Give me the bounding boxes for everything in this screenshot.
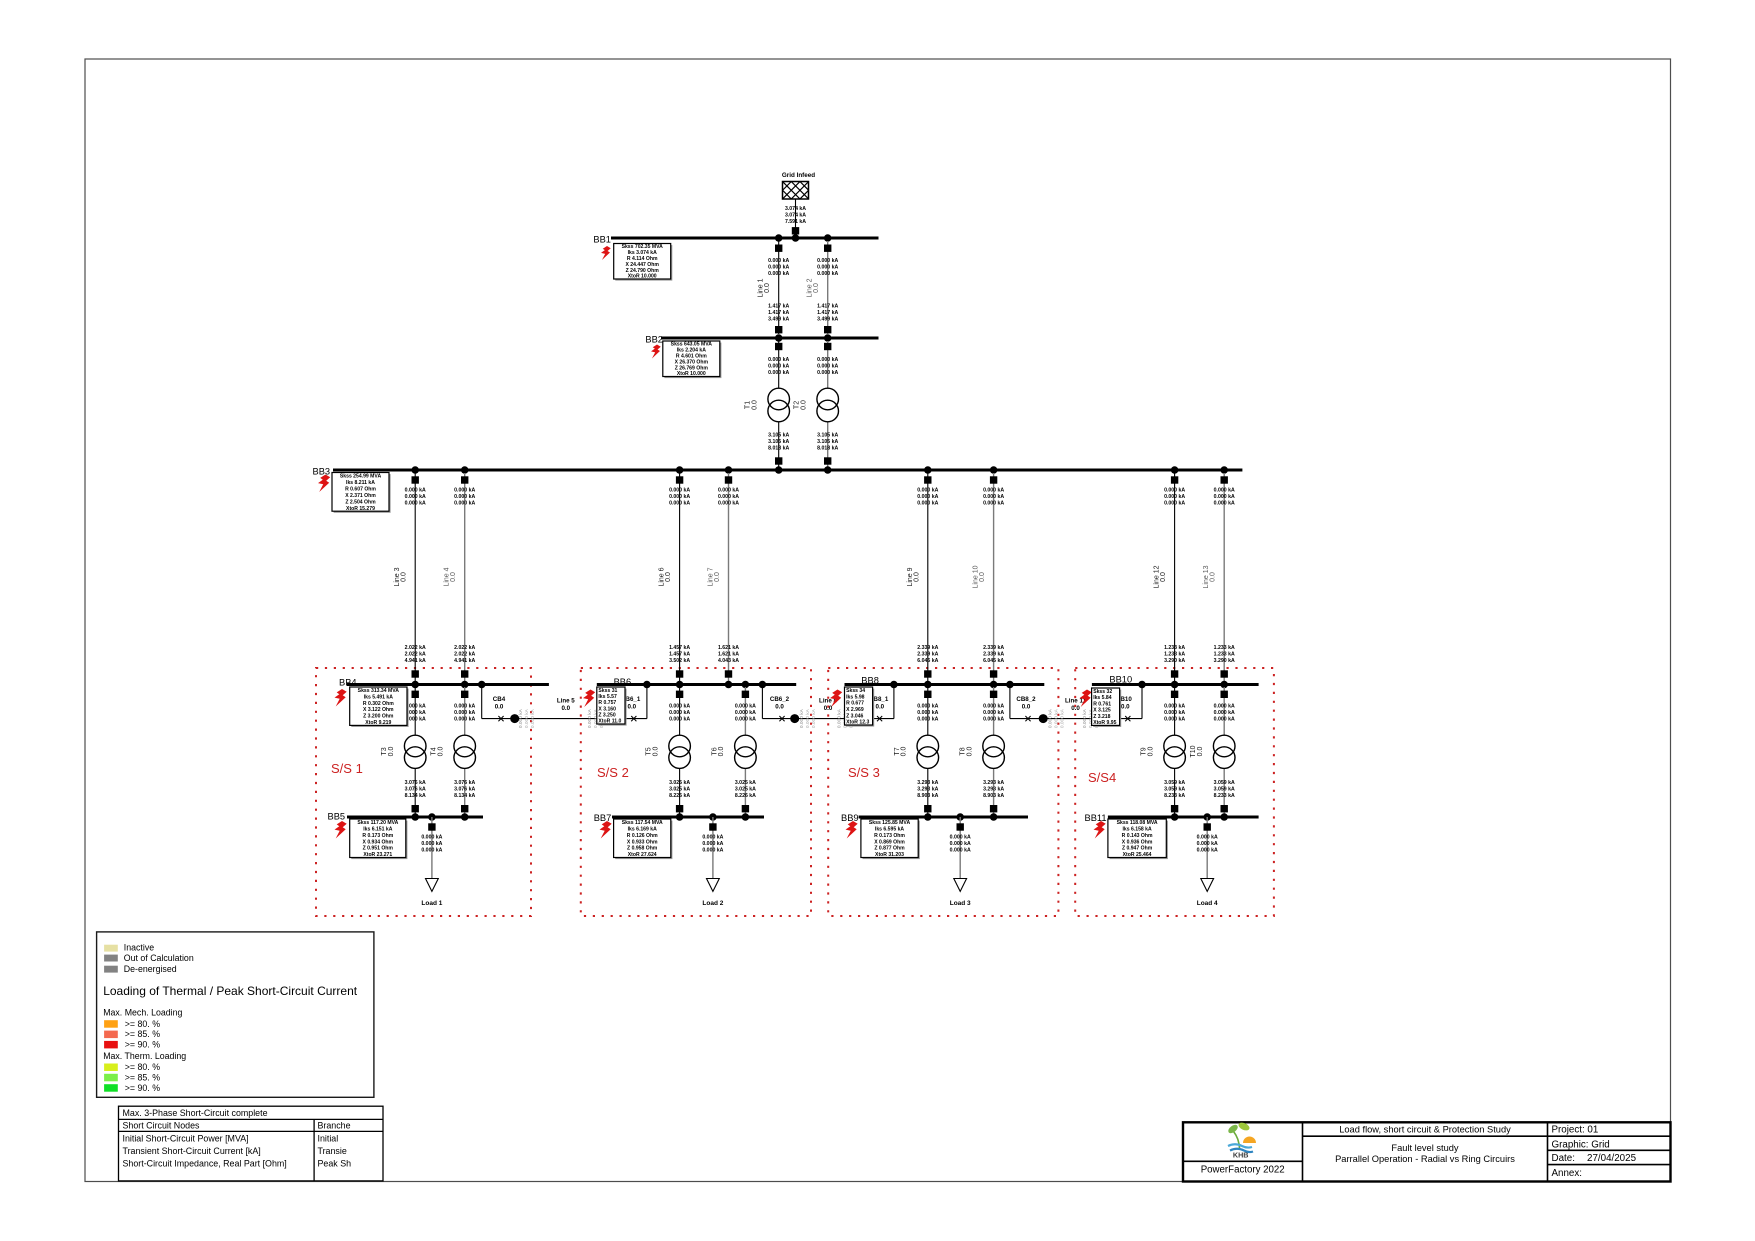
svg-text:3.105 kA: 3.105 kA (817, 439, 838, 445)
svg-text:3.293 kA: 3.293 kA (917, 780, 938, 786)
svg-text:8.903 kA: 8.903 kA (917, 793, 938, 799)
svg-text:Loading of Thermal / Peak Shor: Loading of Thermal / Peak Short-Circuit … (103, 984, 358, 998)
svg-text:Max. Therm. Loading: Max. Therm. Loading (103, 1051, 186, 1061)
svg-text:1.233 kA: 1.233 kA (1214, 645, 1235, 651)
svg-text:0.0: 0.0 (1210, 572, 1217, 582)
svg-text:R 0.143 Ohm: R 0.143 Ohm (1122, 833, 1153, 839)
svg-text:Load 4: Load 4 (1197, 900, 1218, 907)
svg-text:0.000 kA: 0.000 kA (1164, 717, 1185, 723)
svg-text:0.000 kA: 0.000 kA (1164, 710, 1185, 716)
svg-text:XtoR 10.000: XtoR 10.000 (677, 371, 706, 377)
svg-text:4.043 kA: 4.043 kA (718, 658, 739, 664)
svg-text:1.233 kA: 1.233 kA (1214, 652, 1235, 658)
svg-text:6.045 kA: 6.045 kA (983, 658, 1004, 664)
svg-text:BB4: BB4 (339, 678, 357, 688)
svg-text:0.000 kA: 0.000 kA (735, 710, 756, 716)
svg-text:X 2.969: X 2.969 (846, 707, 864, 713)
svg-text:0.000 kA: 0.000 kA (1164, 494, 1185, 500)
svg-text:0.000 kA: 0.000 kA (983, 501, 1004, 507)
svg-text:Transie: Transie (318, 1146, 347, 1156)
svg-text:0.000 kA: 0.000 kA (1197, 848, 1218, 854)
svg-text:7.591 kA: 7.591 kA (785, 219, 806, 225)
svg-text:CB4: CB4 (493, 696, 506, 703)
svg-text:Load 3: Load 3 (950, 900, 971, 907)
svg-text:1.417 kA: 1.417 kA (817, 310, 838, 316)
svg-text:0.000 kA: 0.000 kA (518, 708, 524, 728)
svg-text:8.134 kA: 8.134 kA (405, 793, 426, 799)
svg-text:0.000 kA: 0.000 kA (454, 488, 475, 494)
svg-text:>= 85. %: >= 85. % (125, 1029, 160, 1039)
svg-text:0.000 kA: 0.000 kA (799, 708, 805, 728)
svg-text:8.018 kA: 8.018 kA (817, 446, 838, 452)
svg-text:Skss 254.99 MVA: Skss 254.99 MVA (340, 474, 382, 480)
svg-text:Initial: Initial (318, 1134, 339, 1144)
svg-text:0.000 kA: 0.000 kA (1060, 708, 1066, 728)
svg-text:BB11: BB11 (1085, 813, 1107, 823)
svg-text:XtoR 9.95: XtoR 9.95 (1093, 720, 1116, 726)
svg-text:0.0: 0.0 (1022, 704, 1031, 711)
svg-text:0.000 kA: 0.000 kA (950, 835, 971, 841)
svg-text:0.000 kA: 0.000 kA (702, 841, 723, 847)
svg-text:X 3.122 Ohm: X 3.122 Ohm (363, 707, 394, 713)
svg-text:Transient Short-Circuit Curren: Transient Short-Circuit Current [kA] (123, 1146, 261, 1156)
svg-text:CB6_2: CB6_2 (770, 696, 790, 703)
svg-text:2.022 kA: 2.022 kA (454, 652, 475, 658)
svg-text:0.0: 0.0 (775, 704, 784, 711)
svg-text:BB1: BB1 (593, 235, 611, 245)
svg-text:3.502 kA: 3.502 kA (669, 658, 690, 664)
svg-text:0.000 kA: 0.000 kA (718, 501, 739, 507)
svg-text:0.0: 0.0 (1071, 705, 1080, 712)
svg-text:BB5: BB5 (328, 812, 346, 822)
svg-text:>= 85. %: >= 85. % (125, 1072, 160, 1082)
svg-text:0.000 kA: 0.000 kA (405, 494, 426, 500)
svg-text:0.000 kA: 0.000 kA (950, 848, 971, 854)
svg-text:0.000 kA: 0.000 kA (811, 708, 817, 728)
svg-text:0.000 kA: 0.000 kA (1214, 704, 1235, 710)
svg-text:KHB: KHB (1233, 1150, 1249, 1159)
svg-text:Z 2.504 Ohm: Z 2.504 Ohm (345, 499, 376, 505)
svg-text:Iks 5.84: Iks 5.84 (1093, 695, 1112, 701)
svg-text:Skss 31: Skss 31 (598, 688, 617, 694)
svg-text:0.0: 0.0 (966, 747, 973, 757)
svg-text:0.0: 0.0 (401, 572, 408, 582)
svg-text:1.457 kA: 1.457 kA (669, 645, 690, 651)
svg-text:0.000 kA: 0.000 kA (768, 258, 789, 264)
svg-text:3.025 kA: 3.025 kA (669, 780, 690, 786)
svg-text:3.074 kA: 3.074 kA (785, 213, 806, 219)
svg-text:Max. 3-Phase Short-Circuit com: Max. 3-Phase Short-Circuit complete (123, 1108, 268, 1118)
svg-text:S/S 1: S/S 1 (331, 761, 363, 776)
svg-text:0.000 kA: 0.000 kA (454, 494, 475, 500)
svg-text:0.000 kA: 0.000 kA (405, 501, 426, 507)
svg-text:R 0.126 Ohm: R 0.126 Ohm (627, 833, 658, 839)
svg-text:0.0: 0.0 (813, 283, 820, 293)
svg-text:3.074 kA: 3.074 kA (785, 206, 806, 212)
svg-text:0.000 kA: 0.000 kA (1214, 717, 1235, 723)
svg-text:0.0: 0.0 (1197, 747, 1204, 757)
svg-text:Iks 5.57: Iks 5.57 (598, 694, 617, 700)
svg-text:3.076 kA: 3.076 kA (405, 787, 426, 793)
svg-text:0.000 kA: 0.000 kA (805, 708, 811, 728)
svg-text:X 0.936 Ohm: X 0.936 Ohm (1122, 839, 1153, 845)
svg-text:0.000 kA: 0.000 kA (768, 370, 789, 376)
svg-text:>= 80. %: >= 80. % (125, 1062, 160, 1072)
svg-text:8.233 kA: 8.233 kA (1164, 793, 1185, 799)
svg-text:3.105 kA: 3.105 kA (768, 433, 789, 439)
svg-text:X 3.160: X 3.160 (598, 706, 616, 712)
svg-text:0.000 kA: 0.000 kA (702, 848, 723, 854)
svg-text:BB3: BB3 (313, 467, 331, 477)
svg-text:Parrallel Operation - Radial v: Parrallel Operation - Radial vs Ring Cir… (1335, 1154, 1515, 1164)
svg-text:Z 3.250: Z 3.250 (598, 713, 615, 719)
svg-text:2.022 kA: 2.022 kA (454, 645, 475, 651)
svg-text:0.000 kA: 0.000 kA (587, 708, 593, 728)
svg-text:1.621 kA: 1.621 kA (718, 652, 739, 658)
svg-text:3.293 kA: 3.293 kA (917, 787, 938, 793)
svg-text:0.000 kA: 0.000 kA (917, 488, 938, 494)
svg-text:1.417 kA: 1.417 kA (817, 304, 838, 310)
svg-text:3.059 kA: 3.059 kA (1214, 780, 1235, 786)
svg-text:0.000 kA: 0.000 kA (917, 501, 938, 507)
svg-text:6.045 kA: 6.045 kA (917, 658, 938, 664)
svg-text:0.000 kA: 0.000 kA (1164, 501, 1185, 507)
svg-text:0.000 kA: 0.000 kA (768, 265, 789, 271)
svg-text:XtoR 12.3: XtoR 12.3 (846, 720, 869, 726)
svg-text:0.000 kA: 0.000 kA (817, 271, 838, 277)
svg-text:1.233 kA: 1.233 kA (1164, 652, 1185, 658)
svg-text:0.000 kA: 0.000 kA (454, 501, 475, 507)
svg-text:3.290 kA: 3.290 kA (1214, 658, 1235, 664)
svg-text:3.025 kA: 3.025 kA (735, 780, 756, 786)
svg-text:3.076 kA: 3.076 kA (405, 780, 426, 786)
svg-text:X 2.371 Ohm: X 2.371 Ohm (345, 493, 376, 499)
svg-text:BB7: BB7 (594, 813, 612, 823)
svg-text:S/S 2: S/S 2 (597, 765, 629, 780)
svg-text:0.000 kA: 0.000 kA (950, 841, 971, 847)
svg-text:XtoR 27.624: XtoR 27.624 (628, 852, 657, 858)
svg-text:0.0: 0.0 (1121, 704, 1130, 711)
svg-text:0.000 kA: 0.000 kA (1214, 710, 1235, 716)
svg-text:8.134 kA: 8.134 kA (454, 793, 475, 799)
svg-text:0.0: 0.0 (800, 400, 807, 410)
svg-text:0.000 kA: 0.000 kA (421, 835, 442, 841)
svg-text:0.0: 0.0 (876, 704, 885, 711)
svg-text:0.000 kA: 0.000 kA (669, 501, 690, 507)
svg-text:BB2: BB2 (645, 335, 663, 345)
svg-text:R 0.757: R 0.757 (598, 700, 616, 706)
svg-text:0.0: 0.0 (979, 572, 986, 582)
svg-text:Skss 34: Skss 34 (846, 688, 865, 694)
svg-text:0.000 kA: 0.000 kA (817, 265, 838, 271)
svg-text:3.293 kA: 3.293 kA (983, 780, 1004, 786)
svg-text:BB9: BB9 (841, 813, 859, 823)
svg-text:0.000 kA: 0.000 kA (917, 717, 938, 723)
svg-text:Max. Mech. Loading: Max. Mech. Loading (103, 1008, 182, 1018)
svg-text:>= 80. %: >= 80. % (125, 1019, 160, 1029)
svg-text:27/04/2025: 27/04/2025 (1587, 1153, 1637, 1164)
svg-text:Z 3.046: Z 3.046 (846, 713, 863, 719)
svg-text:0.000 kA: 0.000 kA (983, 704, 1004, 710)
svg-text:BB8: BB8 (861, 676, 879, 686)
svg-text:Inactive: Inactive (124, 943, 154, 953)
svg-text:Initial Short-Circuit Power [M: Initial Short-Circuit Power [MVA] (123, 1134, 249, 1144)
svg-text:2.339 kA: 2.339 kA (917, 652, 938, 658)
svg-text:0.0: 0.0 (652, 747, 659, 757)
svg-text:0.000 kA: 0.000 kA (454, 704, 475, 710)
svg-text:0.000 kA: 0.000 kA (1054, 708, 1060, 728)
svg-text:XtoR 23.271: XtoR 23.271 (363, 852, 392, 858)
svg-text:Short-Circuit Impedance, Real: Short-Circuit Impedance, Real Part [Ohm] (123, 1159, 287, 1169)
svg-text:0.000 kA: 0.000 kA (817, 258, 838, 264)
svg-text:3.290 kA: 3.290 kA (1164, 658, 1185, 664)
svg-text:0.000 kA: 0.000 kA (669, 494, 690, 500)
svg-text:Annex:: Annex: (1552, 1168, 1583, 1179)
svg-text:Short Circuit Nodes: Short Circuit Nodes (123, 1121, 201, 1131)
svg-text:8.018 kA: 8.018 kA (768, 446, 789, 452)
svg-text:0.0: 0.0 (714, 572, 721, 582)
svg-text:2.339 kA: 2.339 kA (983, 652, 1004, 658)
svg-text:0.000 kA: 0.000 kA (817, 357, 838, 363)
svg-text:3.076 kA: 3.076 kA (454, 787, 475, 793)
svg-text:2.022 kA: 2.022 kA (405, 652, 426, 658)
svg-text:Z 3.200 Ohm: Z 3.200 Ohm (363, 714, 394, 720)
svg-text:XtoR 9.219: XtoR 9.219 (365, 720, 391, 726)
svg-text:>= 90. %: >= 90. % (125, 1083, 160, 1093)
svg-text:Iks 8.211 kA: Iks 8.211 kA (346, 480, 375, 486)
svg-text:0.000 kA: 0.000 kA (917, 710, 938, 716)
svg-text:0.000 kA: 0.000 kA (669, 717, 690, 723)
svg-text:B6_1: B6_1 (626, 696, 641, 703)
svg-text:Graphic: Grid: Graphic: Grid (1552, 1140, 1610, 1151)
svg-text:Z 0.877 Ohm: Z 0.877 Ohm (874, 846, 905, 852)
svg-text:0.000 kA: 0.000 kA (983, 710, 1004, 716)
svg-text:XtoR 31.203: XtoR 31.203 (875, 852, 904, 858)
svg-text:Out of Calculation: Out of Calculation (124, 953, 194, 963)
svg-text:0.000 kA: 0.000 kA (524, 708, 530, 728)
svg-text:3.499 kA: 3.499 kA (768, 317, 789, 323)
svg-text:3.076 kA: 3.076 kA (454, 780, 475, 786)
svg-text:1.417 kA: 1.417 kA (768, 310, 789, 316)
svg-text:0.0: 0.0 (665, 572, 672, 582)
svg-text:Z 0.947 Ohm: Z 0.947 Ohm (1122, 846, 1153, 852)
svg-text:Iks 6.169 kA: Iks 6.169 kA (628, 826, 657, 832)
svg-text:2.022 kA: 2.022 kA (405, 645, 426, 651)
svg-text:0.000 kA: 0.000 kA (421, 848, 442, 854)
svg-text:CB8_2: CB8_2 (1016, 696, 1036, 703)
svg-text:0.000 kA: 0.000 kA (530, 708, 536, 728)
svg-text:0.0: 0.0 (764, 283, 771, 293)
svg-text:8.226 kA: 8.226 kA (735, 793, 756, 799)
svg-text:Skss 117.20 MVA: Skss 117.20 MVA (357, 820, 398, 826)
svg-text:0.000 kA: 0.000 kA (1164, 704, 1185, 710)
svg-text:0.000 kA: 0.000 kA (669, 704, 690, 710)
svg-text:BB10: BB10 (1109, 675, 1132, 685)
svg-text:0.0: 0.0 (1160, 572, 1167, 582)
svg-text:Peak Sh: Peak Sh (318, 1159, 352, 1169)
svg-text:R 0.173 Ohm: R 0.173 Ohm (874, 833, 905, 839)
svg-text:0.000 kA: 0.000 kA (983, 488, 1004, 494)
svg-text:0.000 kA: 0.000 kA (768, 357, 789, 363)
svg-text:0.000 kA: 0.000 kA (1197, 841, 1218, 847)
svg-text:De-energised: De-energised (124, 964, 177, 974)
svg-text:0.000 kA: 0.000 kA (1047, 708, 1053, 728)
svg-text:0.0: 0.0 (628, 704, 637, 711)
svg-text:Fault level study: Fault level study (1391, 1143, 1459, 1153)
svg-text:0.000 kA: 0.000 kA (917, 494, 938, 500)
svg-text:Iks 6.158 kA: Iks 6.158 kA (1123, 826, 1152, 832)
svg-text:Load 1: Load 1 (421, 900, 442, 907)
svg-text:BB6: BB6 (614, 677, 632, 687)
svg-text:Iks 6.595 kA: Iks 6.595 kA (875, 826, 904, 832)
svg-text:2.339 kA: 2.339 kA (917, 645, 938, 651)
svg-text:0.000 kA: 0.000 kA (1214, 488, 1235, 494)
svg-text:0.000 kA: 0.000 kA (1214, 494, 1235, 500)
svg-text:S/S4: S/S4 (1088, 770, 1116, 785)
svg-text:1.621 kA: 1.621 kA (718, 645, 739, 651)
svg-text:R 0.607 Ohm: R 0.607 Ohm (345, 486, 376, 492)
svg-text:4.941 kA: 4.941 kA (454, 658, 475, 664)
svg-text:PowerFactory 2022: PowerFactory 2022 (1201, 1165, 1285, 1176)
svg-text:0.000 kA: 0.000 kA (983, 717, 1004, 723)
svg-text:B8_1: B8_1 (874, 696, 889, 703)
svg-text:Iks 5.491 kA: Iks 5.491 kA (364, 694, 393, 700)
svg-text:XtoR 10.000: XtoR 10.000 (628, 274, 657, 280)
svg-text:3.059 kA: 3.059 kA (1164, 787, 1185, 793)
svg-text:Line 5: Line 5 (557, 698, 575, 705)
svg-text:0.0: 0.0 (751, 400, 758, 410)
svg-text:0.000 kA: 0.000 kA (718, 494, 739, 500)
svg-text:3.059 kA: 3.059 kA (1214, 787, 1235, 793)
svg-text:Iks 5.98: Iks 5.98 (846, 694, 865, 700)
svg-text:8.233 kA: 8.233 kA (1214, 793, 1235, 799)
svg-text:1.233 kA: 1.233 kA (1164, 645, 1185, 651)
svg-text:0.0: 0.0 (437, 747, 444, 757)
svg-text:3.059 kA: 3.059 kA (1164, 780, 1185, 786)
svg-text:Branche: Branche (318, 1121, 351, 1131)
svg-text:R 0.677: R 0.677 (846, 701, 864, 707)
svg-text:0.0: 0.0 (824, 705, 833, 712)
svg-text:8.903 kA: 8.903 kA (983, 793, 1004, 799)
svg-text:0.0: 0.0 (718, 747, 725, 757)
svg-text:Z 0.951 Ohm: Z 0.951 Ohm (363, 846, 394, 852)
svg-text:0.000 kA: 0.000 kA (735, 717, 756, 723)
svg-text:0.000 kA: 0.000 kA (768, 271, 789, 277)
svg-text:0.0: 0.0 (561, 705, 570, 712)
svg-text:3.025 kA: 3.025 kA (735, 787, 756, 793)
svg-text:1.417 kA: 1.417 kA (768, 304, 789, 310)
svg-text:Z 3.218: Z 3.218 (1093, 714, 1110, 720)
svg-text:1.457 kA: 1.457 kA (669, 652, 690, 658)
svg-text:S/S 3: S/S 3 (848, 765, 880, 780)
svg-text:2.339 kA: 2.339 kA (983, 645, 1004, 651)
svg-text:0.000 kA: 0.000 kA (983, 494, 1004, 500)
svg-text:X 3.125: X 3.125 (1093, 708, 1111, 714)
svg-text:Skss 313.34 MVA: Skss 313.34 MVA (358, 688, 400, 694)
svg-text:Date:: Date: (1552, 1153, 1575, 1164)
svg-text:3.293 kA: 3.293 kA (983, 787, 1004, 793)
svg-text:0.000 kA: 0.000 kA (1164, 488, 1185, 494)
svg-text:0.000 kA: 0.000 kA (454, 710, 475, 716)
svg-text:3.499 kA: 3.499 kA (817, 317, 838, 323)
svg-text:XtoR 25.464: XtoR 25.464 (1123, 852, 1152, 858)
svg-text:0.000 kA: 0.000 kA (421, 841, 442, 847)
svg-text:X 0.934 Ohm: X 0.934 Ohm (363, 839, 394, 845)
svg-text:0.0: 0.0 (450, 572, 457, 582)
svg-text:4.941 kA: 4.941 kA (405, 658, 426, 664)
svg-text:Load flow, short circuit & Pro: Load flow, short circuit & Protection St… (1339, 1125, 1511, 1135)
svg-text:0.000 kA: 0.000 kA (1214, 501, 1235, 507)
svg-text:R 0.302 Ohm: R 0.302 Ohm (363, 701, 394, 707)
svg-text:XtoR 11.0: XtoR 11.0 (598, 719, 621, 725)
svg-text:Iks 6.151 kA: Iks 6.151 kA (363, 826, 392, 832)
svg-text:>= 90. %: >= 90. % (125, 1040, 160, 1050)
svg-text:0.000 kA: 0.000 kA (669, 488, 690, 494)
svg-text:0.000 kA: 0.000 kA (454, 717, 475, 723)
svg-text:Project: 01: Project: 01 (1552, 1125, 1599, 1136)
svg-text:0.0: 0.0 (1147, 747, 1154, 757)
svg-text:0.000 kA: 0.000 kA (405, 488, 426, 494)
svg-text:0.000 kA: 0.000 kA (1197, 835, 1218, 841)
svg-text:0.0: 0.0 (388, 747, 395, 757)
svg-text:X 0.933 Ohm: X 0.933 Ohm (627, 839, 658, 845)
svg-text:R 0.173 Ohm: R 0.173 Ohm (362, 833, 393, 839)
svg-text:Grid Infeed: Grid Infeed (782, 172, 815, 179)
svg-text:Skss 32: Skss 32 (1093, 689, 1112, 695)
svg-text:Z 0.958 Ohm: Z 0.958 Ohm (627, 846, 658, 852)
svg-text:0.000 kA: 0.000 kA (817, 370, 838, 376)
svg-text:0.000 kA: 0.000 kA (768, 364, 789, 370)
svg-text:0.000 kA: 0.000 kA (917, 704, 938, 710)
svg-text:0.0: 0.0 (901, 747, 908, 757)
svg-text:0.000 kA: 0.000 kA (735, 704, 756, 710)
svg-text:0.000 kA: 0.000 kA (817, 364, 838, 370)
svg-text:3.105 kA: 3.105 kA (768, 439, 789, 445)
svg-text:0.0: 0.0 (913, 572, 920, 582)
svg-text:0.0: 0.0 (495, 704, 504, 711)
svg-text:3.105 kA: 3.105 kA (817, 433, 838, 439)
svg-text:8.226 kA: 8.226 kA (669, 793, 690, 799)
svg-text:3.025 kA: 3.025 kA (669, 787, 690, 793)
svg-text:Skss 117.54 MVA: Skss 117.54 MVA (622, 820, 663, 826)
svg-text:Skss 118.08 MVA: Skss 118.08 MVA (1117, 820, 1158, 826)
svg-text:0.000 kA: 0.000 kA (669, 710, 690, 716)
svg-text:XtoR 15.279: XtoR 15.279 (346, 506, 375, 512)
svg-text:0.000 kA: 0.000 kA (836, 708, 842, 728)
svg-text:0.000 kA: 0.000 kA (718, 488, 739, 494)
svg-text:Load 2: Load 2 (702, 900, 723, 907)
svg-text:Skss 125.85 MVA: Skss 125.85 MVA (869, 820, 911, 826)
svg-text:X 0.869 Ohm: X 0.869 Ohm (874, 839, 905, 845)
svg-text:R 0.761: R 0.761 (1093, 701, 1111, 707)
svg-text:0.000 kA: 0.000 kA (702, 835, 723, 841)
svg-text:0.000 kA: 0.000 kA (1082, 708, 1088, 728)
